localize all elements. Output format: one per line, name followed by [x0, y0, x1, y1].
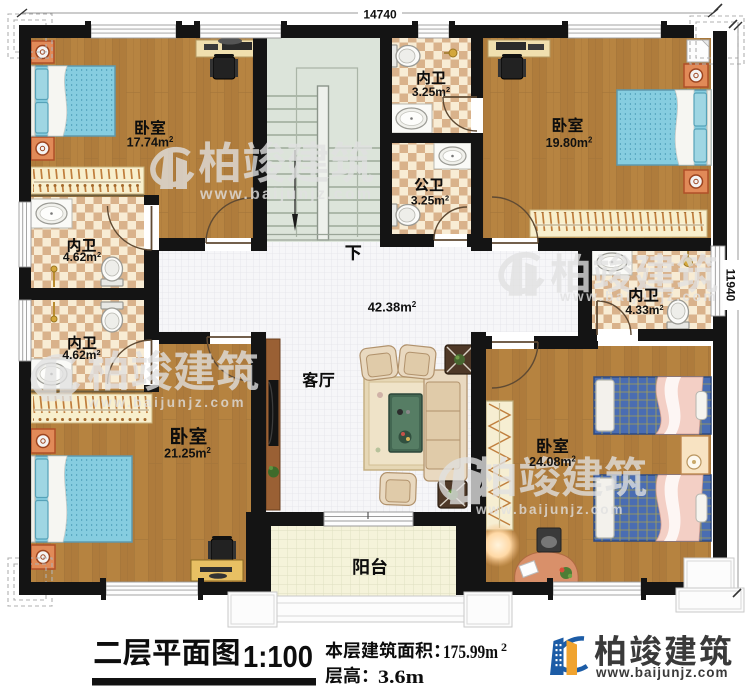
svg-text:www.baijunjz.com: www.baijunjz.com [199, 186, 373, 203]
svg-text:2: 2 [501, 640, 507, 654]
svg-text:4.33m2: 4.33m2 [625, 303, 663, 317]
svg-text:3.25m2: 3.25m2 [412, 85, 450, 99]
svg-text:17.74m2: 17.74m2 [127, 135, 174, 149]
svg-text:11940: 11940 [724, 269, 738, 302]
svg-text:4.62m2: 4.62m2 [62, 348, 100, 362]
svg-text:24.08m2: 24.08m2 [529, 455, 576, 469]
svg-text:21.25m2: 21.25m2 [164, 446, 211, 460]
svg-text:19.80m2: 19.80m2 [546, 136, 593, 150]
svg-text:175.99m: 175.99m [443, 642, 498, 663]
svg-text:www.baijunjz.com: www.baijunjz.com [475, 502, 625, 517]
svg-text:www.baijunjz.com: www.baijunjz.com [87, 395, 246, 410]
svg-text:www.baijunjz.com: www.baijunjz.com [595, 665, 729, 680]
svg-text:3.6m: 3.6m [378, 667, 424, 688]
svg-text:14740: 14740 [363, 8, 397, 22]
svg-text:42.38m2: 42.38m2 [368, 300, 417, 315]
svg-text:3.25m2: 3.25m2 [411, 193, 449, 207]
svg-text:1:100: 1:100 [243, 639, 313, 674]
svg-text:4.62m2: 4.62m2 [63, 250, 101, 264]
